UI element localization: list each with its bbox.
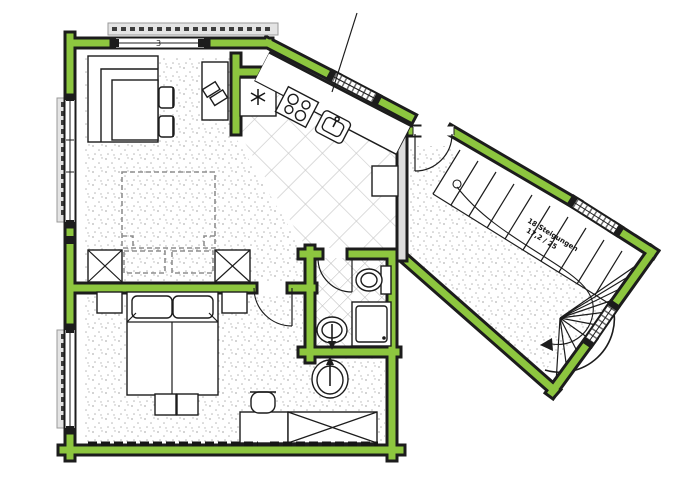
bedroom-wardrobe-x — [288, 412, 377, 443]
bedroom-desk — [240, 412, 288, 443]
base-cabinet — [372, 166, 398, 196]
window-left-upper — [57, 98, 74, 222]
window-marker: 3 — [156, 39, 161, 48]
floor-plan-page: 18 Steigungen 17,2 / 25 3 — [0, 0, 700, 500]
foot-stool-1 — [155, 394, 176, 415]
dining-table — [112, 80, 158, 140]
desk-chair — [250, 392, 276, 413]
floor-plan-svg: 18 Steigungen 17,2 / 25 3 — [0, 0, 700, 500]
nightstand-right — [222, 292, 247, 313]
pillow-right — [173, 296, 213, 318]
shower — [352, 302, 391, 346]
nightstand-left — [97, 292, 122, 313]
wardrobe-x-left — [88, 250, 122, 282]
foot-stool-2 — [177, 394, 198, 415]
dining-chair-1 — [159, 87, 174, 108]
window-left-lower — [57, 330, 70, 428]
wardrobe-x-right — [215, 250, 250, 282]
dining-chair-2 — [159, 116, 174, 137]
pillow-left — [132, 296, 172, 318]
